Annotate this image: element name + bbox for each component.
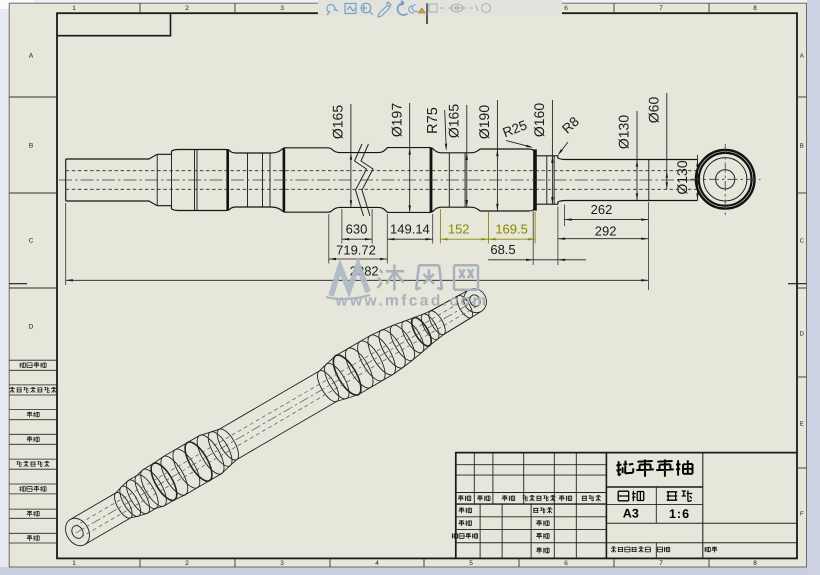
svg-text:7: 7	[659, 5, 663, 12]
svg-text:Ø197: Ø197	[389, 103, 405, 137]
svg-text:719.72: 719.72	[336, 242, 376, 257]
svg-text:A: A	[29, 53, 34, 60]
svg-text:Ø165: Ø165	[330, 105, 346, 139]
svg-text:152: 152	[448, 221, 470, 236]
svg-text:Ø160: Ø160	[531, 103, 547, 137]
svg-text:1: 1	[72, 5, 76, 12]
svg-text:3: 3	[280, 5, 284, 12]
svg-text:Ø165: Ø165	[445, 104, 461, 138]
svg-text:169.5: 169.5	[495, 221, 528, 236]
svg-text:F: F	[800, 511, 804, 518]
svg-text:5: 5	[469, 560, 473, 567]
svg-text:630: 630	[346, 222, 368, 237]
svg-text:A: A	[800, 53, 804, 60]
svg-text:R75: R75	[425, 107, 441, 134]
svg-text:68.5: 68.5	[490, 242, 515, 257]
svg-text:2: 2	[185, 5, 189, 12]
svg-text:1:6: 1:6	[669, 507, 690, 521]
svg-text:www.mfcad.com: www.mfcad.com	[335, 293, 489, 310]
svg-text:262: 262	[591, 202, 613, 217]
svg-text:E: E	[800, 421, 804, 428]
svg-text:Ø130: Ø130	[674, 160, 690, 194]
svg-text:8: 8	[753, 5, 757, 12]
svg-text:A3: A3	[623, 506, 639, 520]
svg-text:3: 3	[280, 560, 284, 567]
svg-text:149.14: 149.14	[390, 222, 430, 237]
svg-text:2: 2	[185, 560, 189, 567]
svg-text:292: 292	[595, 223, 617, 238]
svg-text:7: 7	[659, 560, 663, 567]
svg-text:B: B	[800, 143, 804, 150]
svg-text:D: D	[29, 324, 34, 331]
svg-text:6: 6	[564, 5, 568, 12]
svg-text:Ø60: Ø60	[645, 97, 661, 124]
svg-text:8: 8	[753, 560, 757, 567]
svg-text:Ø130: Ø130	[616, 115, 632, 149]
svg-text:D: D	[800, 331, 805, 338]
svg-text:6: 6	[564, 560, 568, 567]
svg-text:4: 4	[375, 560, 379, 567]
svg-text:B: B	[29, 143, 33, 150]
svg-text:1: 1	[72, 560, 76, 567]
svg-text:C: C	[800, 238, 805, 245]
svg-text:C: C	[29, 238, 34, 245]
svg-text:Ø190: Ø190	[476, 105, 492, 139]
